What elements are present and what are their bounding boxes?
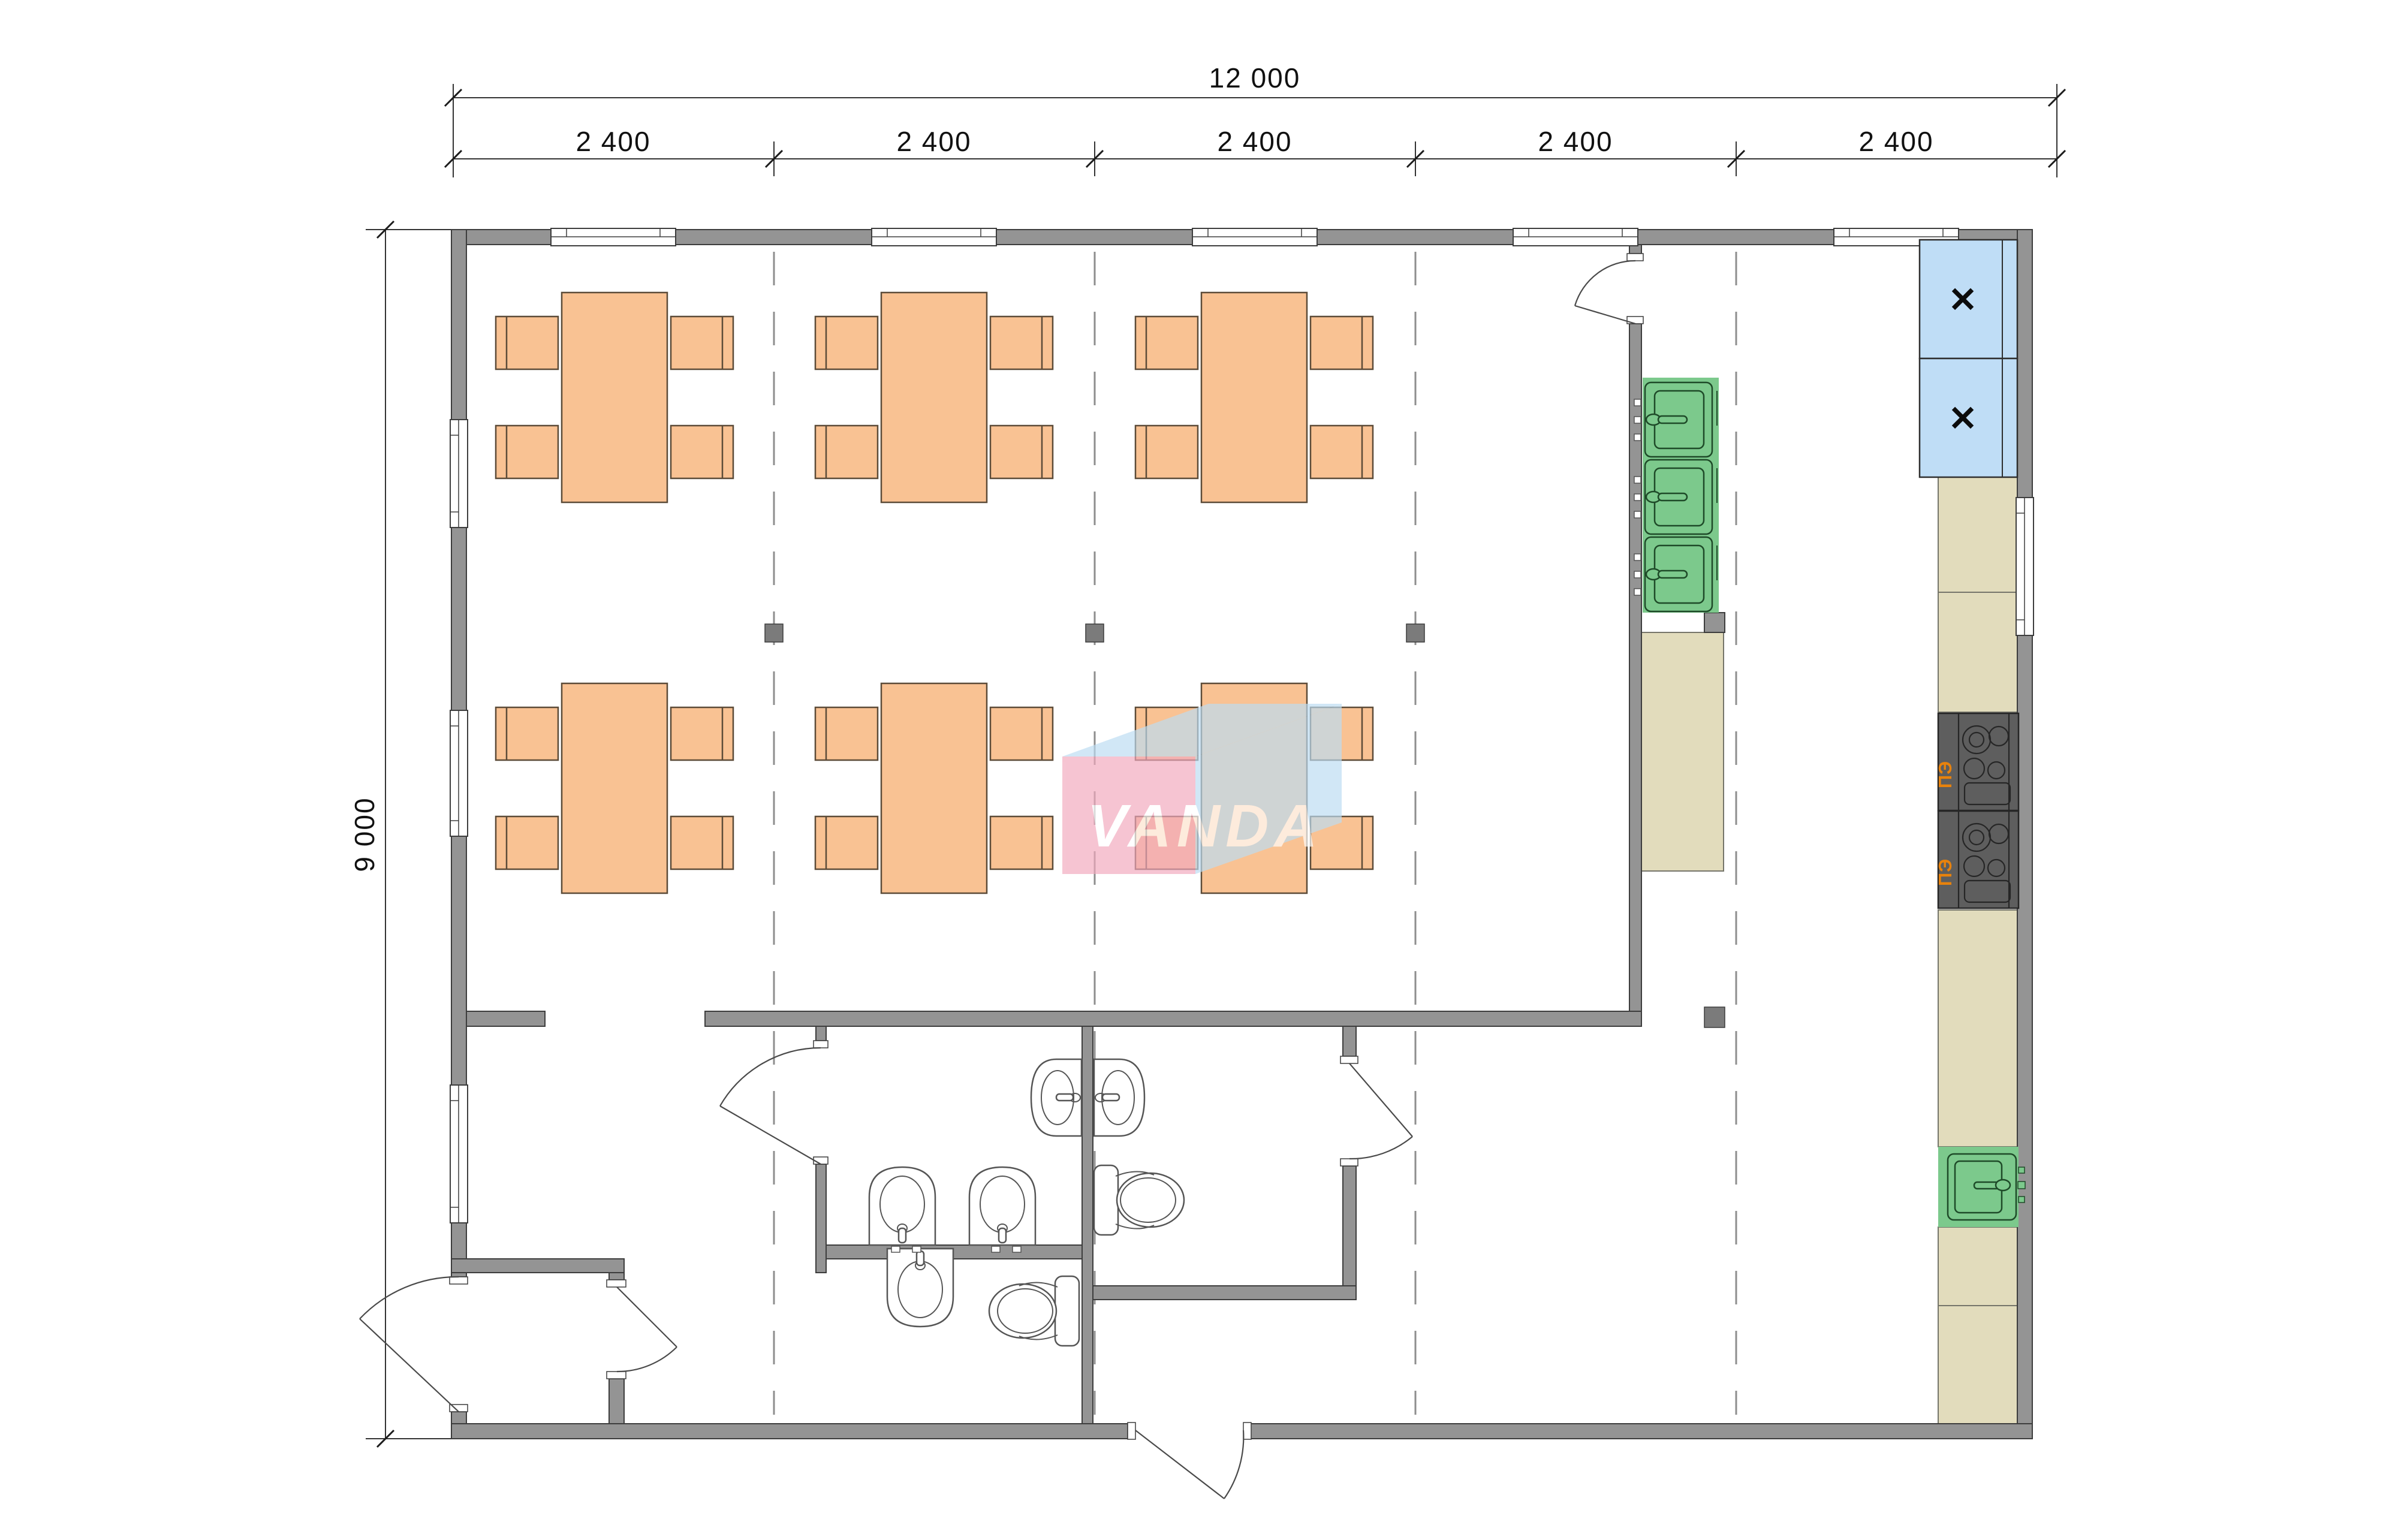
door-vestibule-inner <box>617 1287 677 1372</box>
wall-wc-bottom <box>1093 1286 1356 1300</box>
wall-divider-main <box>705 1011 1641 1026</box>
dim-bay-5: 2 400 <box>1858 126 1933 157</box>
dim-bay-3: 2 400 <box>1217 126 1292 157</box>
table-group <box>1135 293 1373 502</box>
door-entrance <box>1135 1430 1243 1499</box>
wall-washroom-a <box>816 1026 826 1041</box>
wall-washroom-b <box>816 1164 826 1273</box>
wall-kitchen-b <box>1629 324 1641 1011</box>
window-left-3 <box>450 1085 468 1223</box>
wash-basin-icon <box>869 1167 935 1245</box>
table-group <box>496 293 733 502</box>
sink-icon <box>1645 537 1717 611</box>
wash-basin-icon <box>1031 1059 1081 1136</box>
wall-stub <box>1704 613 1725 632</box>
wall-hall-a <box>1343 1026 1356 1056</box>
wall-vestibule-top <box>451 1259 624 1273</box>
wall-right <box>2017 230 2032 1439</box>
table-group <box>815 683 1053 893</box>
dim-overall-width: 12 000 <box>1209 62 1301 94</box>
wall-hall-b <box>1343 1166 1356 1286</box>
door-hall <box>1349 1063 1412 1159</box>
sink-icon <box>1645 382 1717 457</box>
wall-vestibule-right-b <box>609 1379 624 1424</box>
wall-bottom-left <box>451 1424 1128 1439</box>
floor-plan: ПЭ ✕ <box>0 0 2398 1540</box>
dim-bay-2: 2 400 <box>896 126 971 157</box>
fridge-icon <box>1920 358 2017 477</box>
wash-basin-icon <box>969 1167 1035 1245</box>
door-vestibule-outer <box>360 1277 459 1412</box>
window-top-1 <box>551 228 676 246</box>
wash-sinks <box>1634 378 1719 613</box>
dim-bay-1: 2 400 <box>576 126 650 157</box>
stove-icon <box>1935 713 2019 810</box>
stove-icon <box>1935 811 2019 908</box>
table-group <box>815 293 1053 502</box>
wall-washroom-bottom <box>826 1245 1082 1259</box>
vanda-logo: VANDA <box>1062 704 1342 874</box>
logo-text: VANDA <box>1087 792 1322 860</box>
dim-bay-4: 2 400 <box>1538 126 1613 157</box>
wall-wc-divider <box>1082 1026 1093 1424</box>
window-top-3 <box>1192 228 1317 246</box>
wash-basin-icon <box>887 1249 953 1327</box>
window-right-1 <box>2016 498 2034 635</box>
window-left-1 <box>450 420 468 528</box>
door-kitchen <box>1575 261 1635 324</box>
fridges <box>1920 240 2017 477</box>
window-top-4 <box>1513 228 1638 246</box>
toilet-icon <box>1094 1165 1184 1235</box>
counter-island <box>1641 632 1724 871</box>
fridge-icon <box>1920 240 2017 358</box>
stoves <box>1935 713 2019 908</box>
wall-vestibule-right-a <box>609 1273 624 1280</box>
counter-right-mid <box>1938 910 2019 1147</box>
window-top-2 <box>872 228 996 246</box>
dim-overall-height: 9 000 <box>349 797 380 872</box>
counter-right-bottom <box>1938 1227 2019 1424</box>
bottom-sink <box>1938 1147 2025 1227</box>
wall-divider-stub <box>466 1011 545 1026</box>
wall-bottom-right <box>1251 1424 2032 1439</box>
sink-icon <box>1645 460 1717 534</box>
counter-right-top <box>1938 477 2019 712</box>
table-group <box>496 683 733 893</box>
toilet-icon <box>989 1276 1079 1346</box>
bathroom-fixtures <box>869 1059 1184 1346</box>
wash-basin-icon <box>1094 1059 1144 1136</box>
door-washroom <box>720 1048 821 1164</box>
kitchen-counters <box>1641 477 2019 1424</box>
window-left-2 <box>450 710 468 836</box>
